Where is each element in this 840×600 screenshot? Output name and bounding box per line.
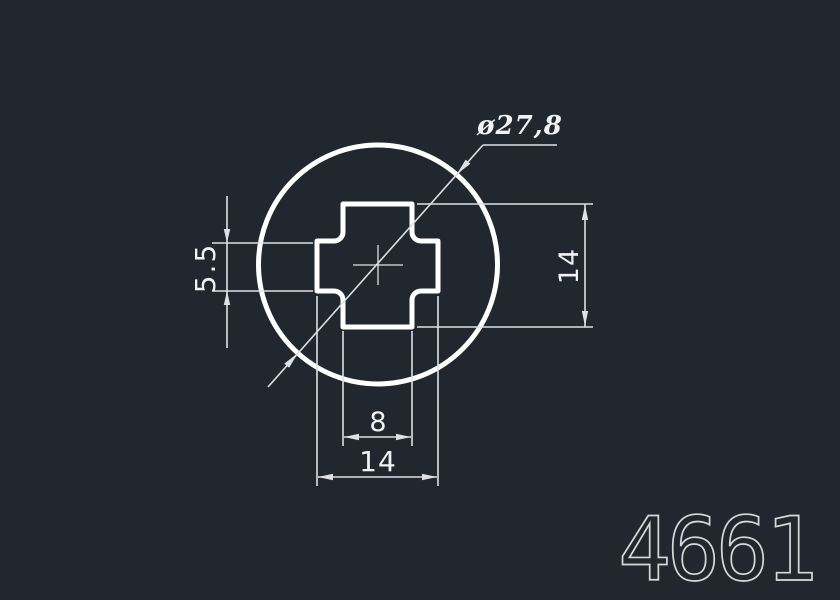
dimension-arrow — [396, 434, 411, 440]
cad-canvas[interactable]: ø27,8 5.5 14 8 14 4661 — [0, 0, 840, 600]
diameter-label: ø27,8 — [476, 111, 563, 141]
dimension-value: 14 — [359, 445, 397, 478]
center-mark — [353, 245, 403, 285]
dimension-value: 5.5 — [189, 243, 222, 294]
dimension-slot-height: 5.5 — [189, 196, 313, 348]
dimension-overall-height: 14 — [417, 204, 593, 327]
dimension-value: 14 — [554, 248, 585, 284]
part-number: 4661 — [618, 498, 814, 600]
dimension-value: 8 — [369, 407, 386, 438]
diameter-leader-diagonal — [268, 145, 483, 387]
dimension-arrow — [224, 291, 230, 305]
dimension-arrow — [582, 311, 588, 326]
dimension-slot-width: 8 — [343, 331, 412, 446]
dimension-arrow — [422, 474, 437, 480]
dimension-arrow — [318, 474, 333, 480]
dimension-arrow — [224, 229, 230, 243]
dimension-arrow — [344, 434, 359, 440]
dimension-arrow — [582, 205, 588, 220]
